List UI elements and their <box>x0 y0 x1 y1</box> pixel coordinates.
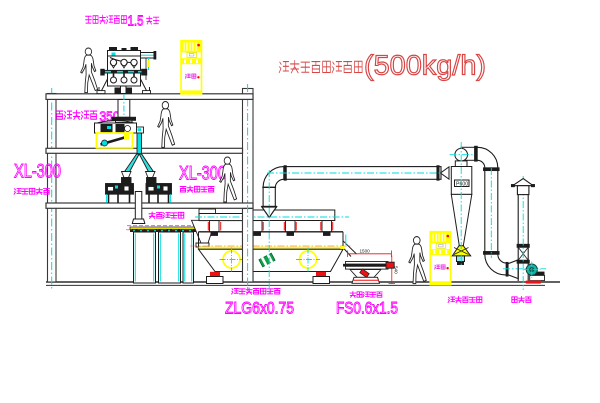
svg-text:ZLG6x0.75: ZLG6x0.75 <box>225 299 294 318</box>
svg-text:1.5: 1.5 <box>128 13 144 30</box>
svg-text:P600: P600 <box>456 181 468 187</box>
svg-text:(500kg/h): (500kg/h) <box>364 50 486 81</box>
svg-text:FS0.6x1.5: FS0.6x1.5 <box>336 299 398 318</box>
svg-text:XL-300: XL-300 <box>14 162 61 183</box>
svg-text:1500: 1500 <box>360 249 371 254</box>
svg-text:XL-300: XL-300 <box>179 164 226 185</box>
